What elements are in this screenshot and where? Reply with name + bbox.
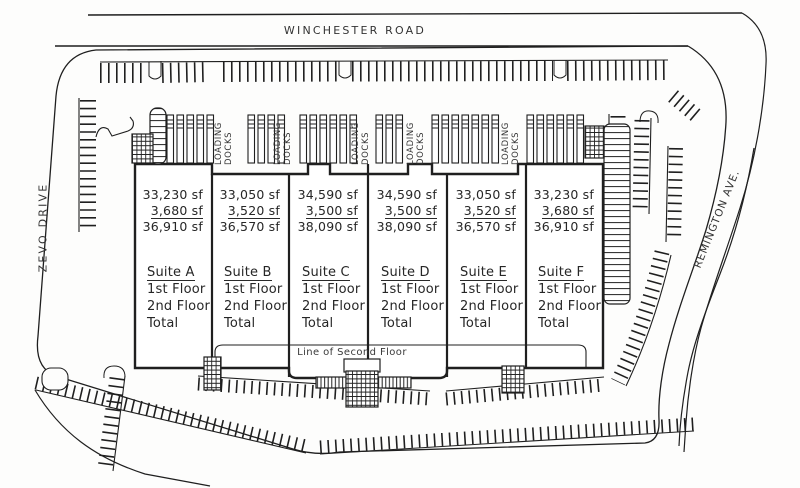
total-sf: 36,570 sf <box>440 219 516 235</box>
loading-docks-label: LOADING DOCKS <box>273 109 295 165</box>
suite-b-legend: Suite B 1st Floor 2nd Floor Total <box>224 264 287 332</box>
curb-squiggle <box>96 117 133 137</box>
suite-name: Suite D <box>381 265 430 281</box>
row-label: Total <box>460 315 523 332</box>
row-label: Total <box>538 315 601 332</box>
suite-e-legend: Suite E 1st Floor 2nd Floor Total <box>460 264 523 332</box>
first-floor-sf: 33,230 sf <box>518 187 594 203</box>
second-floor-sf: 3,500 sf <box>385 203 437 219</box>
suite-a-legend: Suite A 1st Floor 2nd Floor Total <box>147 264 210 332</box>
zevo-drive-label: ZEVO DRIVE <box>37 178 50 278</box>
suite-name: Suite E <box>460 265 507 281</box>
row-label: 1st Floor <box>147 281 210 298</box>
row-label: 1st Floor <box>381 281 444 298</box>
row-label: 1st Floor <box>538 281 601 298</box>
row-label: 2nd Floor <box>147 298 210 315</box>
suite-name: Suite F <box>538 265 584 281</box>
total-sf: 36,910 sf <box>518 219 594 235</box>
suite-name: Suite B <box>224 265 272 281</box>
total-sf: 36,570 sf <box>204 219 280 235</box>
row-label: Total <box>224 315 287 332</box>
second-floor-sf: 3,520 sf <box>228 203 280 219</box>
first-floor-sf: 33,050 sf <box>204 187 280 203</box>
second-floor-sf: 3,680 sf <box>151 203 203 219</box>
row-label: 1st Floor <box>224 281 287 298</box>
total-sf: 36,910 sf <box>127 219 203 235</box>
row-label: Total <box>302 315 365 332</box>
suite-f-panel: 33,230 sf 3,680 sf 36,910 sf Suite F 1st… <box>518 187 610 337</box>
site-plan: WINCHESTER ROAD ZEVO DRIVE REMINGTON AVE… <box>0 0 800 488</box>
row-label: Total <box>147 315 210 332</box>
loading-docks-label: LOADING DOCKS <box>406 109 428 165</box>
row-label: 1st Floor <box>460 281 523 298</box>
row-label: 2nd Floor <box>224 298 287 315</box>
first-floor-sf: 33,050 sf <box>440 187 516 203</box>
second-floor-sf: 3,500 sf <box>306 203 358 219</box>
first-floor-sf: 33,230 sf <box>127 187 203 203</box>
total-sf: 38,090 sf <box>282 219 358 235</box>
second-floor-sf: 3,680 sf <box>542 203 594 219</box>
suite-c-legend: Suite C 1st Floor 2nd Floor Total <box>302 264 365 332</box>
suite-name: Suite C <box>302 265 350 281</box>
loading-docks-label: LOADING DOCKS <box>214 109 236 165</box>
loading-docks-label: LOADING DOCKS <box>501 109 523 165</box>
suite-d-legend: Suite D 1st Floor 2nd Floor Total <box>381 264 444 332</box>
row-label: 2nd Floor <box>538 298 601 315</box>
second-floor-sf: 3,520 sf <box>464 203 516 219</box>
remington-ave-lines <box>679 13 766 452</box>
row-label: 2nd Floor <box>381 298 444 315</box>
loading-docks-label: LOADING DOCKS <box>351 109 373 165</box>
second-floor-note: Line of Second Floor <box>272 347 432 358</box>
row-label: Total <box>381 315 444 332</box>
suite-f-areas: 33,230 sf 3,680 sf 36,910 sf <box>518 187 610 235</box>
winchester-road-label: WINCHESTER ROAD <box>255 24 455 37</box>
row-label: 2nd Floor <box>302 298 365 315</box>
first-floor-sf: 34,590 sf <box>361 187 437 203</box>
first-floor-sf: 34,590 sf <box>282 187 358 203</box>
total-sf: 38,090 sf <box>361 219 437 235</box>
suite-name: Suite A <box>147 265 195 281</box>
zevo-drive-lines <box>35 390 210 486</box>
suite-f-legend: Suite F 1st Floor 2nd Floor Total <box>538 264 601 332</box>
row-label: 2nd Floor <box>460 298 523 315</box>
row-label: 1st Floor <box>302 281 365 298</box>
